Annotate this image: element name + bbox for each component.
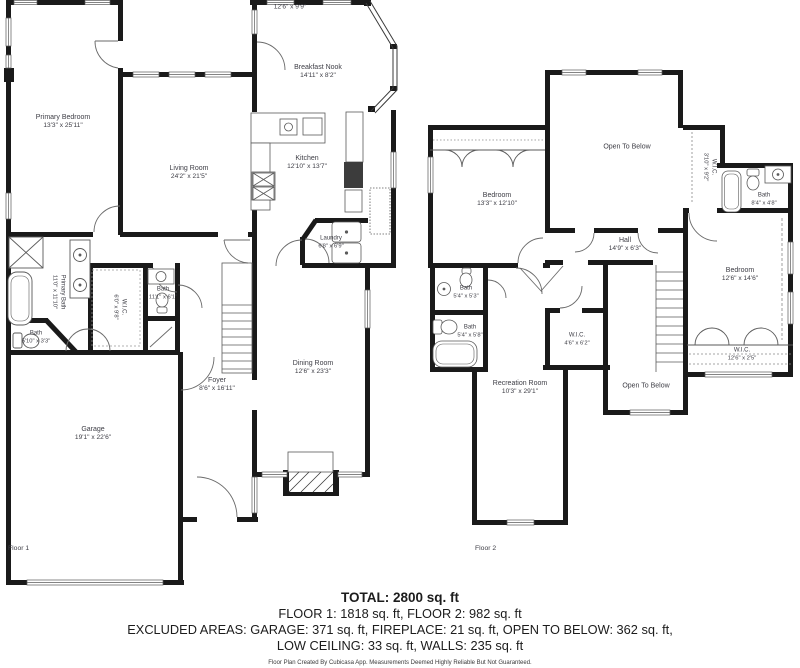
- area-summary: TOTAL: 2800 sq. ft FLOOR 1: 1818 sq. ft,…: [0, 588, 800, 666]
- room-label-dining-room: Dining Room 12'6" x 23'3": [293, 359, 333, 377]
- room-label-wic-3: W.I.C. 12'6" x 2'5": [728, 347, 757, 362]
- floor-plan-page: 12'6" x 9'9" Primary Bedroom 13'3" x 25'…: [0, 0, 800, 668]
- room-label-living-room: Living Room 24'2" x 21'5": [170, 164, 209, 182]
- kitchen-counters: [251, 112, 390, 234]
- floor2-stairs: [656, 265, 683, 372]
- room-label-bedroom-2: Bedroom 12'6" x 14'6": [722, 266, 758, 284]
- room-label-kitchen: Kitchen 12'10" x 13'7": [287, 154, 327, 172]
- room-label-foyer: Foyer 8'6" x 16'11": [199, 376, 235, 394]
- floor-areas-text: FLOOR 1: 1818 sq. ft, FLOOR 2: 982 sq. f…: [0, 606, 800, 621]
- room-label-bath-1: Bath 8'4" x 4'8": [751, 192, 776, 207]
- floor1-stairs: [222, 263, 252, 373]
- room-label-primary-bath: Primary Bath 11'0" x 11'10": [50, 275, 65, 310]
- room-label-bedroom-1: Bedroom 13'3" x 12'10": [477, 191, 517, 209]
- room-label-bath-center: Bath 11'1" x 6'1": [149, 286, 177, 301]
- room-label-bath-small: Bath 5'10" x 3'3": [22, 330, 51, 345]
- floor2-tag: Floor 2: [475, 545, 496, 552]
- room-label-wic-2: W.I.C. 4'6" x 6'2": [564, 332, 589, 347]
- room-label-wic-1: W.I.C. 3'10" x 9'2": [701, 153, 716, 182]
- floor2-windows: [428, 70, 793, 525]
- room-label-hall: Hall 14'9" x 6'3": [609, 236, 642, 254]
- bay-window: [366, 1, 397, 113]
- floor2-walls: [428, 70, 793, 525]
- room-label-bath-3: Bath 5'4" x 5'8": [457, 324, 482, 339]
- room-label-open-to-below-top: Open To Below: [603, 142, 650, 151]
- room-label-primary-bedroom: Primary Bedroom 13'3" x 25'11": [36, 113, 90, 131]
- disclaimer-text: Floor Plan Created By Cubicasa App. Meas…: [0, 660, 800, 666]
- total-area-text: TOTAL: 2800 sq. ft: [0, 590, 800, 605]
- room-label-bath-2: Bath 5'4" x 5'3": [453, 285, 478, 300]
- floor1-door-arcs: [66, 41, 329, 517]
- room-label-breakfast-nook: Breakfast Nook 14'11" x 8'2": [294, 63, 342, 81]
- room-label-unnamed-top: 12'6" x 9'9": [274, 4, 307, 13]
- excluded-areas-text-1: EXCLUDED AREAS: GARAGE: 371 sq. ft, FIRE…: [0, 622, 800, 637]
- room-label-laundry: Laundry 6'8" x 6'9": [318, 235, 343, 250]
- floor1-tag: Floor 1: [8, 545, 29, 552]
- room-label-wic: W.I.C. 6'0" x 9'8": [111, 294, 126, 319]
- room-label-open-to-below-bottom: Open To Below: [622, 381, 669, 390]
- excluded-areas-text-2: LOW CEILING: 33 sq. ft, WALLS: 235 sq. f…: [0, 638, 800, 653]
- fireplace-icon: [288, 452, 333, 492]
- room-label-garage: Garage 19'1" x 22'6": [75, 425, 111, 443]
- room-label-recreation-room: Recreation Room 10'3" x 29'1": [493, 379, 547, 397]
